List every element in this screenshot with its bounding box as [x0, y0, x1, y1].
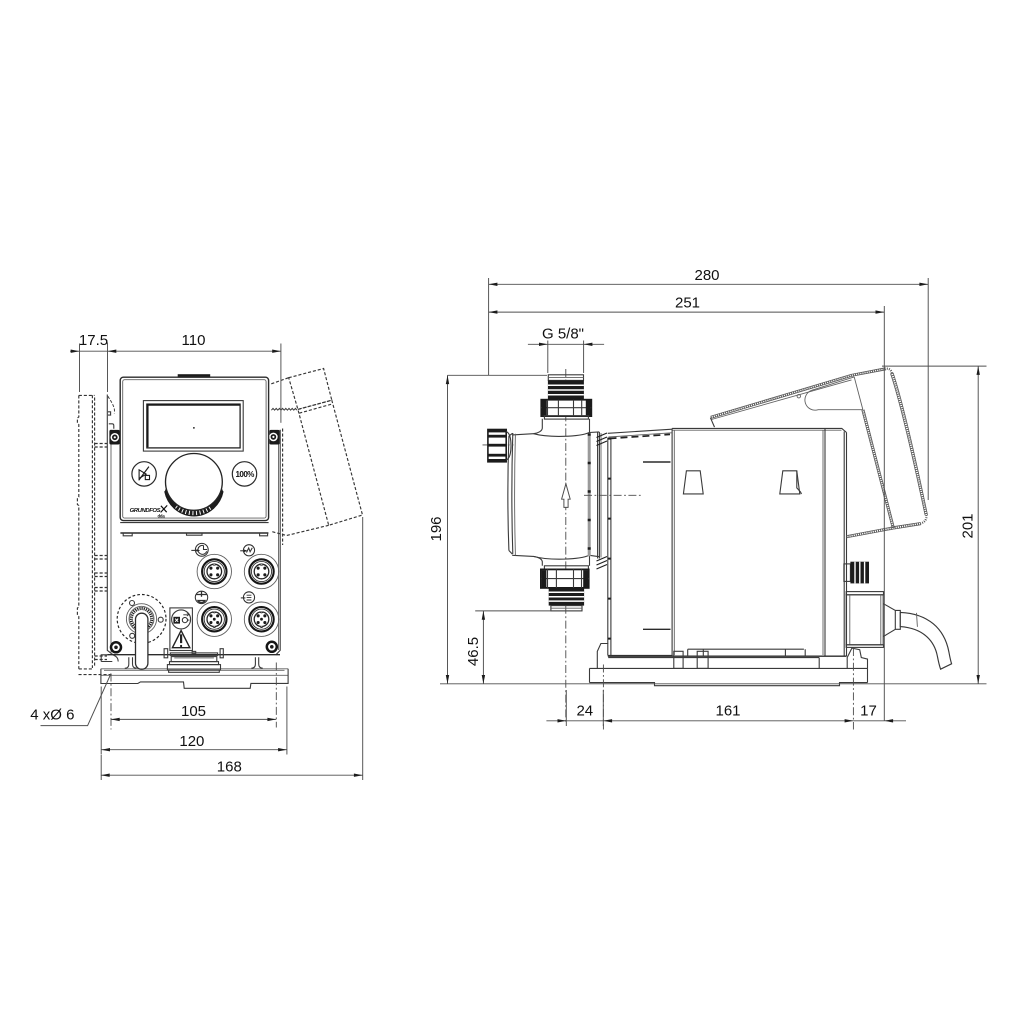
svg-text:120: 120 [179, 733, 204, 750]
svg-text:17.5: 17.5 [79, 332, 108, 349]
svg-text:24: 24 [576, 703, 593, 720]
svg-text:17: 17 [860, 703, 877, 720]
svg-text:196: 196 [428, 516, 445, 541]
svg-text:100%: 100% [235, 470, 254, 479]
svg-text:dda: dda [158, 514, 166, 519]
svg-text:46.5: 46.5 [465, 637, 482, 666]
svg-text:G 5/8": G 5/8" [542, 325, 584, 342]
svg-text:280: 280 [694, 267, 719, 284]
svg-text:201: 201 [959, 513, 976, 538]
svg-text:251: 251 [675, 295, 700, 312]
svg-text:GRUNDFOS: GRUNDFOS [130, 508, 161, 514]
svg-text:105: 105 [181, 703, 206, 720]
svg-text:4 xØ 6: 4 xØ 6 [30, 707, 74, 724]
svg-text:110: 110 [182, 332, 206, 349]
svg-text:161: 161 [715, 703, 740, 720]
svg-text:168: 168 [217, 759, 242, 776]
